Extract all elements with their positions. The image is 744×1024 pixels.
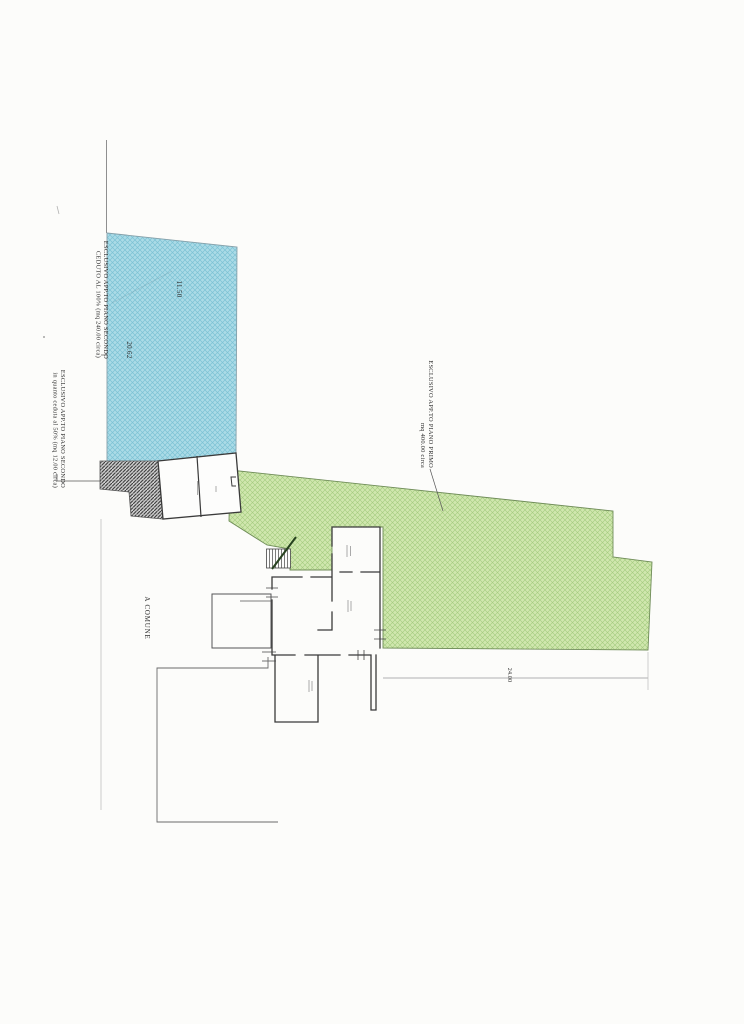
dimension-label-top: 11.50 bbox=[175, 281, 183, 298]
label-common-area: A COMUNE bbox=[143, 596, 151, 639]
first-floor-area-group bbox=[229, 470, 652, 650]
label-second-floor-half-line2: in quanto ceduta al 50% (mq 12.00 circa) bbox=[52, 372, 59, 488]
label-second-floor-half-line1: ESCLUSIVO APP.TO PIANO SECONDO bbox=[59, 370, 66, 488]
courtyard-outline bbox=[157, 657, 278, 822]
courtyard-outline-group bbox=[157, 657, 278, 822]
dimension-label-left: 20.62 bbox=[125, 341, 133, 358]
left-annex-terrace-outline bbox=[212, 594, 271, 648]
upper-building-footprint bbox=[158, 453, 241, 519]
first-floor-green-area bbox=[229, 470, 652, 650]
scan-speck-2 bbox=[57, 206, 59, 214]
dimension-line-bottom bbox=[383, 652, 648, 690]
label-second-floor-sold-line2: CEDUTO AL 100% (mq 240.00 circa) bbox=[95, 251, 102, 358]
scan-artifacts bbox=[43, 206, 59, 338]
label-first-floor-line1: ESCLUSIVO APP.TO PIANO PRIMO bbox=[427, 360, 434, 468]
dimension-label-bottom: 24.00 bbox=[506, 668, 512, 683]
site-plan-drawing: ESCLUSIVO APP.TO PIANO SECONDO CEDUTO AL… bbox=[0, 0, 744, 1024]
shared-strip-gray-area bbox=[100, 461, 163, 519]
scan-speck-1 bbox=[43, 336, 45, 338]
scanned-site-plan-page: ESCLUSIVO APP.TO PIANO SECONDO CEDUTO AL… bbox=[0, 0, 744, 1024]
label-first-floor-line2: mq 400.00 circa bbox=[419, 423, 426, 468]
label-second-floor-sold-line1: ESCLUSIVO APP.TO PIANO SECONDO bbox=[102, 241, 109, 359]
window-door-ticks bbox=[262, 588, 386, 661]
